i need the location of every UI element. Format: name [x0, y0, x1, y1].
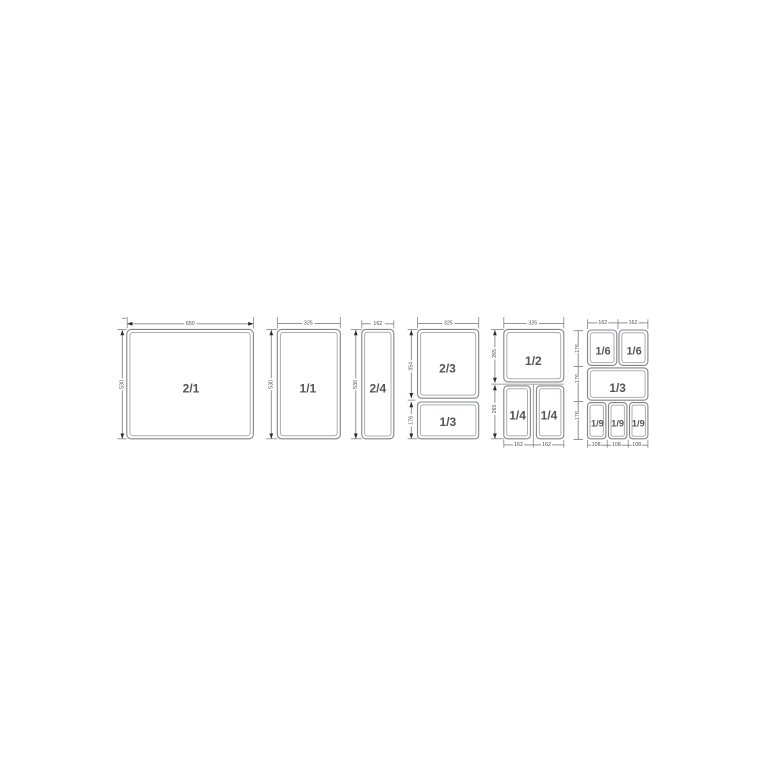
- svg-text:1/3: 1/3: [440, 415, 457, 429]
- svg-text:176: 176: [575, 344, 581, 353]
- svg-text:1/9: 1/9: [611, 418, 624, 428]
- svg-text:1/2: 1/2: [525, 354, 542, 368]
- svg-text:325: 325: [528, 320, 537, 326]
- svg-text:162: 162: [629, 320, 638, 326]
- svg-text:1/6: 1/6: [595, 345, 610, 357]
- svg-text:108: 108: [592, 442, 601, 448]
- svg-text:162: 162: [514, 442, 523, 448]
- svg-text:1/9: 1/9: [591, 418, 604, 428]
- svg-text:162: 162: [598, 320, 607, 326]
- svg-text:162: 162: [542, 442, 551, 448]
- svg-text:1/4: 1/4: [541, 408, 558, 422]
- svg-text:265: 265: [492, 405, 498, 414]
- svg-text:162: 162: [373, 321, 382, 327]
- svg-text:1/9: 1/9: [632, 418, 645, 428]
- svg-text:108: 108: [632, 442, 641, 448]
- svg-text:1/4: 1/4: [509, 408, 526, 422]
- svg-text:176: 176: [408, 416, 414, 425]
- svg-text:325: 325: [444, 320, 453, 326]
- svg-text:1/3: 1/3: [609, 381, 626, 395]
- svg-text:2/4: 2/4: [369, 382, 386, 396]
- svg-text:650: 650: [186, 321, 195, 327]
- svg-text:1/6: 1/6: [626, 345, 641, 357]
- svg-text:2/1: 2/1: [183, 382, 200, 396]
- svg-text:108: 108: [612, 442, 621, 448]
- svg-text:354: 354: [408, 362, 414, 371]
- svg-text:2/3: 2/3: [439, 362, 456, 376]
- svg-text:176: 176: [575, 411, 581, 420]
- svg-text:530: 530: [119, 380, 125, 389]
- svg-text:325: 325: [304, 320, 313, 326]
- svg-text:530: 530: [353, 380, 359, 389]
- svg-text:265: 265: [492, 349, 498, 358]
- svg-text:176: 176: [575, 374, 581, 383]
- svg-text:530: 530: [268, 380, 274, 389]
- svg-text:1/1: 1/1: [300, 382, 317, 396]
